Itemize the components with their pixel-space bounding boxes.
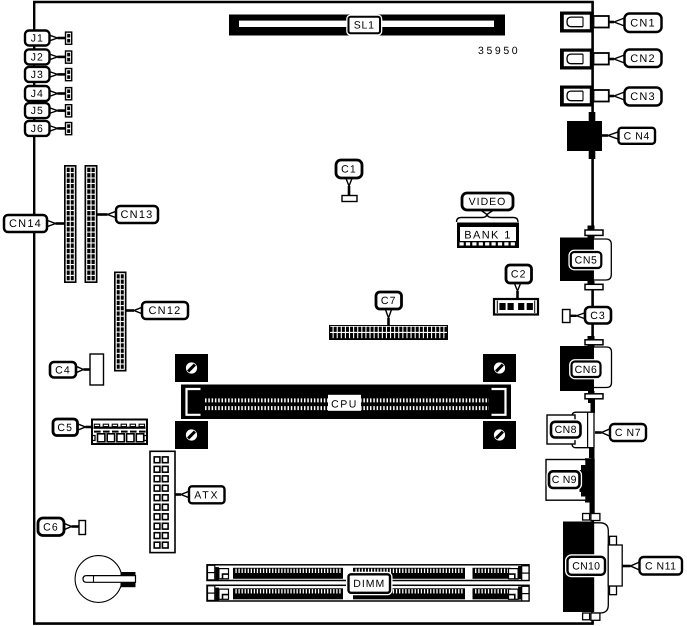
svg-text:BANK 1: BANK 1 xyxy=(464,230,512,242)
svg-text:CN10: CN10 xyxy=(572,560,600,572)
svg-text:C N9: C N9 xyxy=(552,474,577,486)
svg-text:C3: C3 xyxy=(590,310,605,322)
svg-text:SL1: SL1 xyxy=(354,20,375,32)
svg-text:CN12: CN12 xyxy=(149,305,182,317)
svg-text:CN2: CN2 xyxy=(630,53,656,65)
svg-text:J2: J2 xyxy=(31,51,44,63)
svg-text:CN13: CN13 xyxy=(121,209,154,221)
svg-text:J3: J3 xyxy=(31,69,44,81)
svg-text:C N4: C N4 xyxy=(624,130,650,142)
svg-text:CN1: CN1 xyxy=(630,17,656,29)
svg-text:J5: J5 xyxy=(31,105,44,117)
svg-text:VIDEO: VIDEO xyxy=(469,196,507,208)
svg-text:CN5: CN5 xyxy=(575,255,598,267)
svg-text:C5: C5 xyxy=(57,422,73,434)
svg-text:C N11: C N11 xyxy=(645,560,676,572)
svg-text:ATX: ATX xyxy=(194,489,219,501)
svg-text:C7: C7 xyxy=(381,295,397,307)
svg-text:C N7: C N7 xyxy=(615,427,641,439)
svg-text:DIMM: DIMM xyxy=(353,578,385,590)
svg-text:C6: C6 xyxy=(43,521,59,533)
svg-text:CN14: CN14 xyxy=(9,218,42,230)
svg-text:CN6: CN6 xyxy=(575,364,598,376)
svg-text:CN8: CN8 xyxy=(555,424,577,436)
svg-text:J4: J4 xyxy=(31,88,44,100)
svg-text:J6: J6 xyxy=(31,123,44,135)
svg-text:C1: C1 xyxy=(341,164,357,176)
svg-text:J1: J1 xyxy=(31,33,44,45)
svg-text:CN3: CN3 xyxy=(630,91,656,103)
svg-text:CPU: CPU xyxy=(331,398,358,410)
svg-text:35950: 35950 xyxy=(478,45,520,57)
svg-text:C4: C4 xyxy=(55,364,71,376)
svg-text:C2: C2 xyxy=(511,269,527,281)
